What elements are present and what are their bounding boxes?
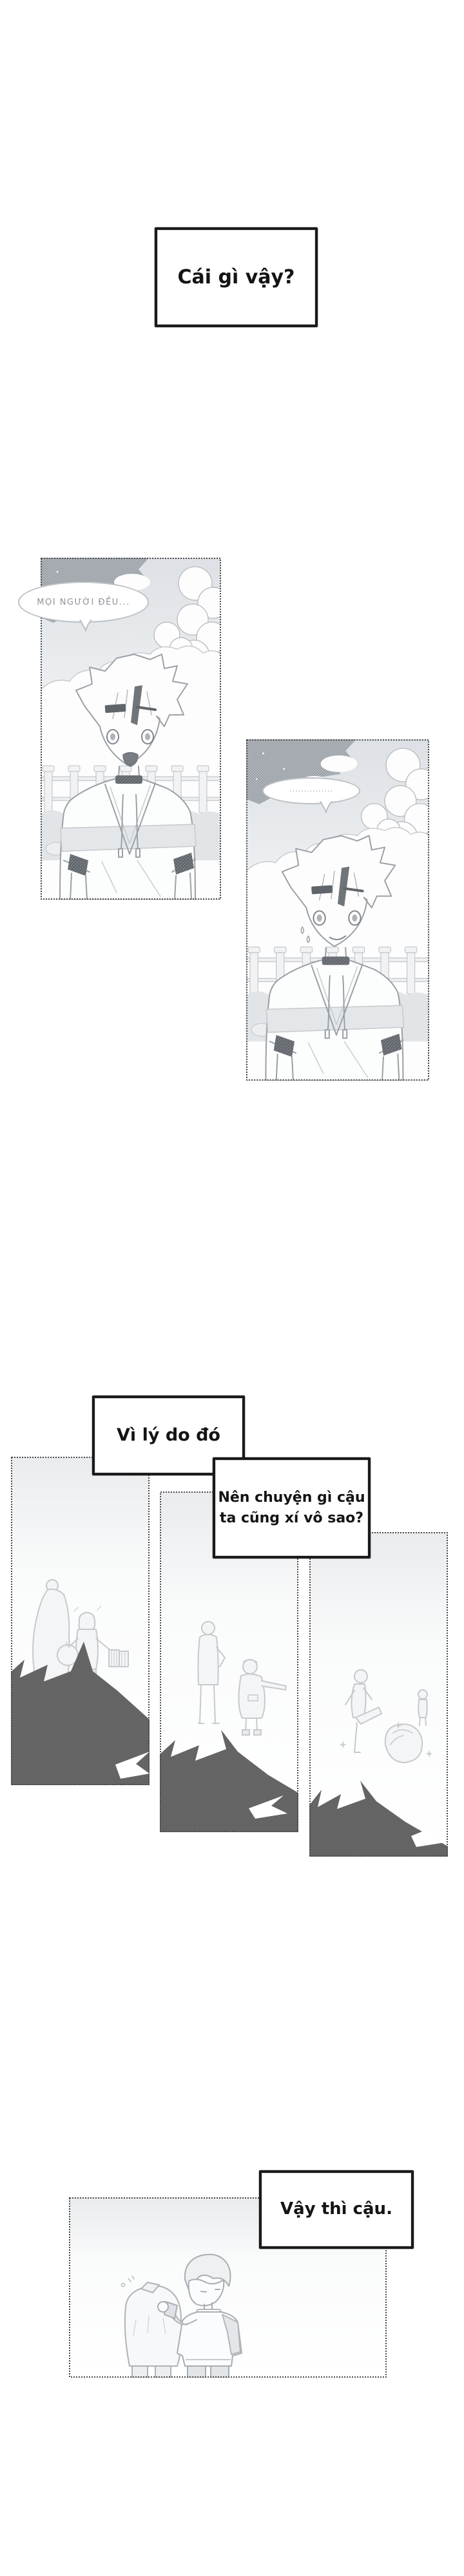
comic-page: Cái gì vậy? MỌI NGƯỜI ĐỀU... [0, 0, 464, 2576]
speech-bubble-2-text: ··············· [289, 787, 333, 795]
bubble-tail-icon [319, 801, 333, 813]
panel-5-flashback-kicking [309, 1532, 448, 1857]
panel-5-art [309, 1532, 448, 1857]
caption-1-text: Cái gì vậy? [178, 263, 295, 292]
bubble-tail-icon [79, 620, 93, 632]
caption-2-text: Vì lý do đó [117, 1423, 220, 1448]
caption-box-1: Cái gì vậy? [155, 227, 318, 327]
caption-box-4: Vậy thì cậu. [259, 2170, 414, 2249]
panel-3-art [11, 1457, 150, 1785]
caption-3-line2: ta cũng xí vô sao? [220, 1510, 363, 1526]
caption-4-text: Vậy thì cậu. [280, 2197, 392, 2222]
caption-box-3: Nên chuyện gì cậu ta cũng xí vô sao? [213, 1457, 371, 1558]
speech-bubble-1: MỌI NGƯỜI ĐỀU... [18, 582, 149, 623]
speech-bubble-1-text: MỌI NGƯỜI ĐỀU... [37, 598, 130, 607]
speech-bubble-2: ··············· [262, 777, 360, 804]
caption-3-line1: Nên chuyện gì cậu [218, 1490, 365, 1506]
panel-3-flashback-carrying-bags [11, 1457, 150, 1785]
